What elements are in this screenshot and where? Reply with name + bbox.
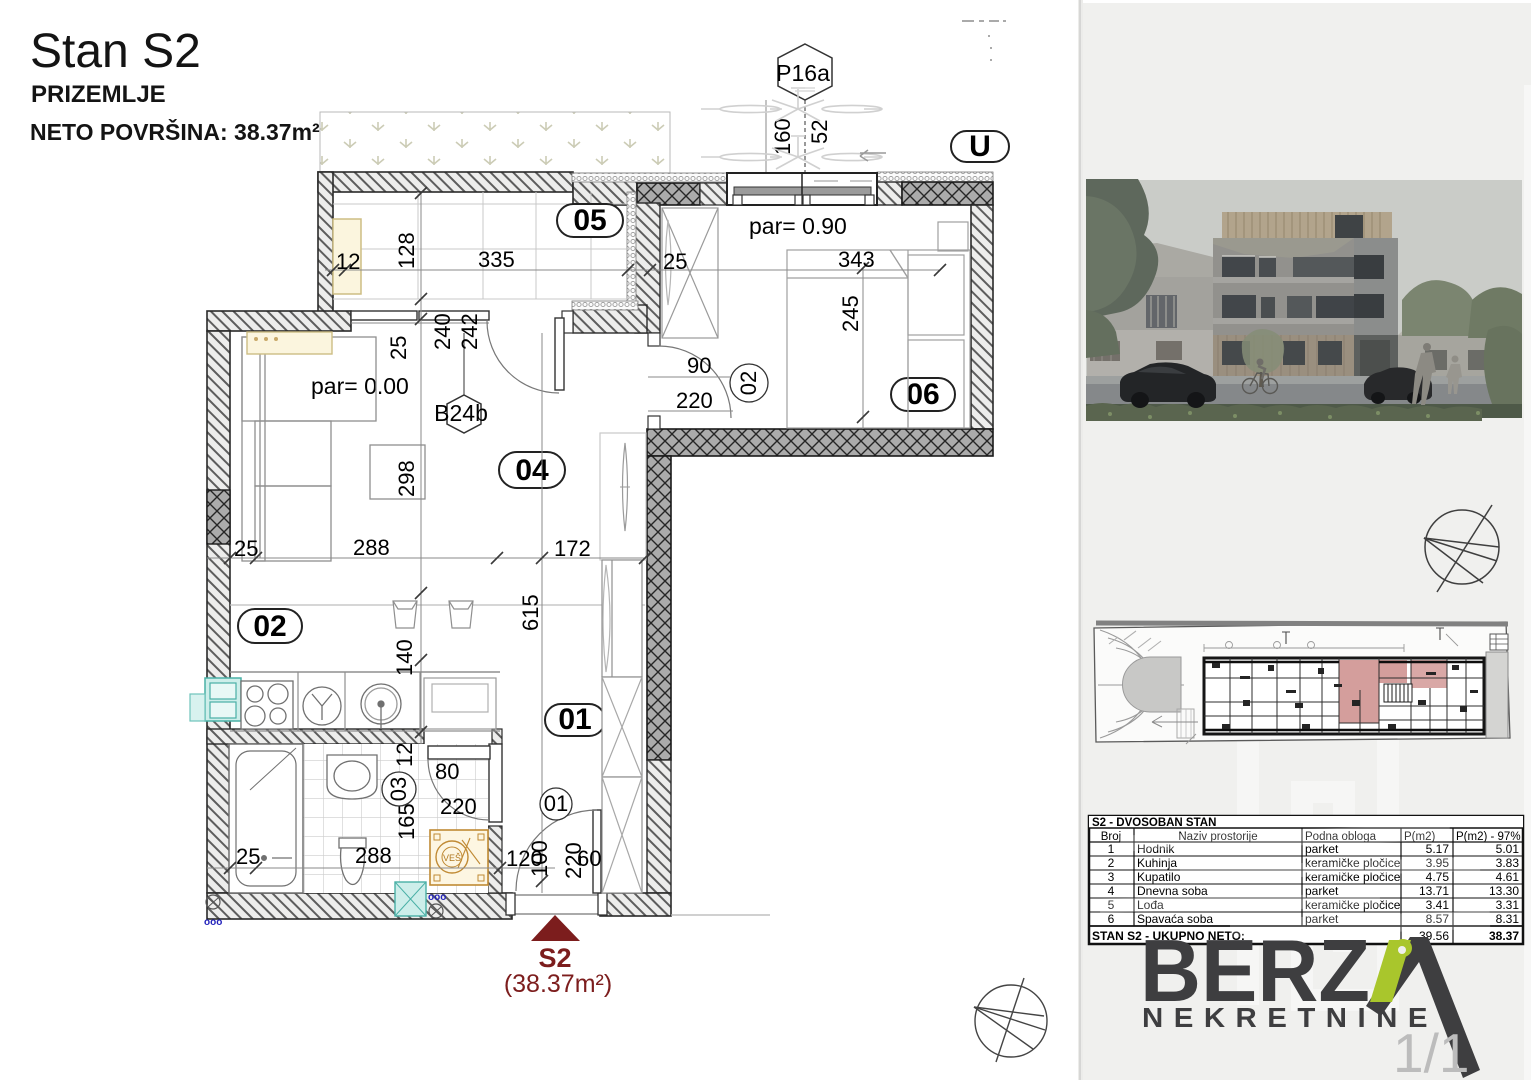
svg-text:25: 25 — [663, 249, 687, 274]
svg-text:240: 240 — [430, 313, 455, 350]
svg-text:VEŠ: VEŠ — [443, 853, 461, 863]
svg-text:12: 12 — [392, 743, 417, 767]
svg-text:165: 165 — [394, 803, 419, 840]
svg-text:615: 615 — [518, 594, 543, 631]
svg-text:13.71: 13.71 — [1419, 884, 1449, 898]
svg-text:3: 3 — [1108, 870, 1115, 884]
svg-text:60: 60 — [577, 846, 601, 871]
svg-text:3.83: 3.83 — [1496, 856, 1520, 870]
svg-text:1: 1 — [1108, 842, 1115, 856]
svg-text:6: 6 — [1108, 912, 1115, 926]
svg-text:90: 90 — [687, 353, 711, 378]
svg-text:03: 03 — [386, 777, 411, 801]
svg-text:5.01: 5.01 — [1496, 842, 1520, 856]
svg-text:2: 2 — [1108, 856, 1115, 870]
svg-text:13.30: 13.30 — [1489, 884, 1519, 898]
svg-text:S2: S2 — [538, 943, 571, 973]
svg-text:242: 242 — [457, 313, 482, 350]
svg-text:128: 128 — [394, 232, 419, 269]
svg-text:06: 06 — [906, 378, 939, 411]
svg-text:Kupatilo: Kupatilo — [1137, 870, 1181, 884]
svg-text:25: 25 — [234, 536, 258, 561]
svg-text:288: 288 — [353, 535, 390, 560]
svg-text:par= 0.90: par= 0.90 — [749, 213, 847, 239]
svg-text:4: 4 — [1108, 884, 1115, 898]
svg-text:80: 80 — [435, 759, 459, 784]
svg-text:01: 01 — [544, 791, 568, 816]
svg-text:ooo: ooo — [428, 892, 446, 903]
svg-text:Dnevna soba: Dnevna soba — [1137, 884, 1208, 898]
svg-text:3.41: 3.41 — [1426, 898, 1450, 912]
svg-text:140: 140 — [392, 639, 417, 676]
svg-text:05: 05 — [573, 204, 606, 237]
svg-text:Stan S2: Stan S2 — [30, 25, 201, 78]
svg-text:172: 172 — [554, 536, 591, 561]
svg-text:ooo: ooo — [204, 917, 222, 928]
svg-text:288: 288 — [355, 843, 392, 868]
svg-text:NETO POVRŠINA: 38.37m²: NETO POVRŠINA: 38.37m² — [30, 118, 320, 145]
svg-text:343: 343 — [838, 247, 875, 272]
svg-text:5.17: 5.17 — [1426, 842, 1450, 856]
svg-text:8.31: 8.31 — [1496, 912, 1520, 926]
svg-text:P16a: P16a — [776, 60, 830, 86]
svg-text:02: 02 — [253, 610, 286, 643]
svg-text:1/1: 1/1 — [1393, 1022, 1469, 1080]
svg-text:335: 335 — [478, 247, 515, 272]
svg-text:100: 100 — [527, 840, 552, 877]
svg-text:Kuhinja: Kuhinja — [1137, 856, 1177, 870]
svg-text:220: 220 — [440, 794, 477, 819]
svg-text:U: U — [969, 130, 991, 163]
svg-text:220: 220 — [676, 388, 713, 413]
svg-text:04: 04 — [515, 454, 549, 487]
svg-text:12: 12 — [336, 249, 360, 274]
svg-text:(38.37m²): (38.37m²) — [504, 970, 612, 998]
svg-text:38.37: 38.37 — [1489, 929, 1519, 943]
svg-text:01: 01 — [558, 703, 591, 736]
svg-text:PRIZEMLJE: PRIZEMLJE — [31, 81, 166, 108]
svg-text:S2 - DVOSOBAN STAN: S2 - DVOSOBAN STAN — [1092, 817, 1216, 829]
svg-text:52: 52 — [807, 120, 832, 144]
svg-text:par= 0.00: par= 0.00 — [311, 373, 409, 399]
svg-text:B24b: B24b — [434, 400, 488, 426]
svg-text:25: 25 — [236, 844, 260, 869]
svg-text:02: 02 — [736, 371, 761, 395]
svg-text:3.31: 3.31 — [1496, 898, 1520, 912]
svg-text:4.61: 4.61 — [1496, 870, 1520, 884]
svg-text:245: 245 — [838, 295, 863, 332]
svg-text:298: 298 — [394, 460, 419, 497]
svg-text:25: 25 — [386, 336, 411, 360]
